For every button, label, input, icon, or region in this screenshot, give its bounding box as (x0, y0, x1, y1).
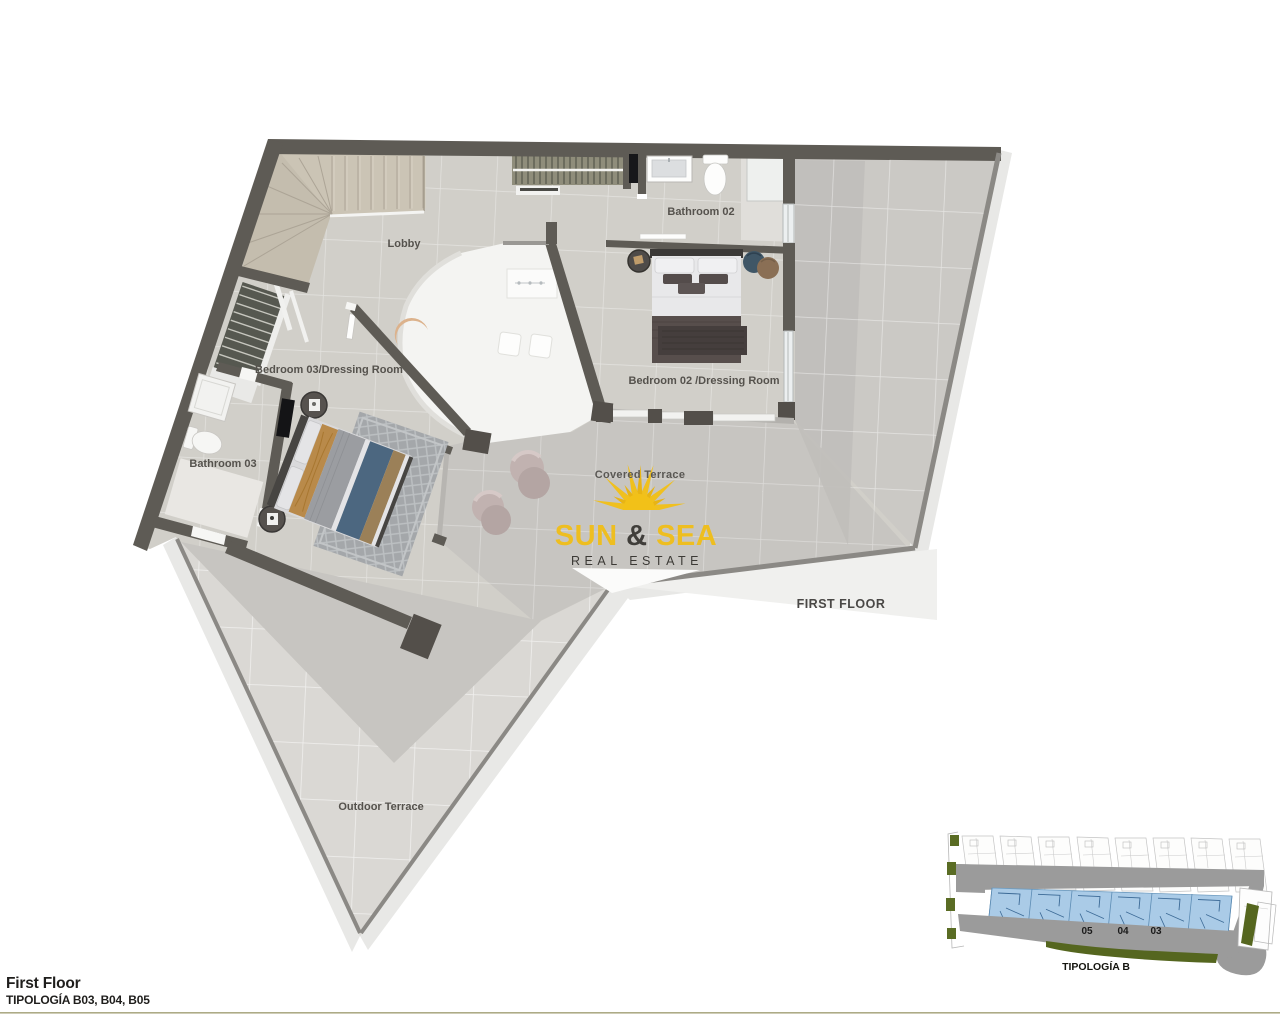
svg-text:TIPOLOGÍA B03, B04, B05: TIPOLOGÍA B03, B04, B05 (6, 992, 150, 1007)
svg-text:First Floor: First Floor (6, 975, 81, 992)
svg-text:FIRST FLOOR: FIRST FLOOR (797, 597, 886, 611)
svg-text:Bedroom 03/Dressing Room: Bedroom 03/Dressing Room (255, 364, 403, 376)
svg-text:Outdoor Terrace: Outdoor Terrace (338, 801, 423, 813)
svg-text:TIPOLOGÍA B: TIPOLOGÍA B (1062, 960, 1130, 973)
svg-text:04: 04 (1117, 926, 1129, 937)
svg-text:03: 03 (1150, 926, 1162, 937)
svg-text:SUN & SEA: SUN & SEA (555, 520, 717, 552)
svg-text:Bathroom 03: Bathroom 03 (189, 458, 256, 470)
svg-text:Lobby: Lobby (388, 238, 422, 250)
svg-text:REAL ESTATE: REAL ESTATE (571, 554, 703, 568)
svg-text:Bathroom 02: Bathroom 02 (667, 206, 734, 218)
svg-text:Covered Terrace: Covered Terrace (595, 469, 686, 481)
svg-text:05: 05 (1081, 926, 1093, 937)
svg-text:Bedroom 02 /Dressing Room: Bedroom 02 /Dressing Room (629, 375, 780, 387)
